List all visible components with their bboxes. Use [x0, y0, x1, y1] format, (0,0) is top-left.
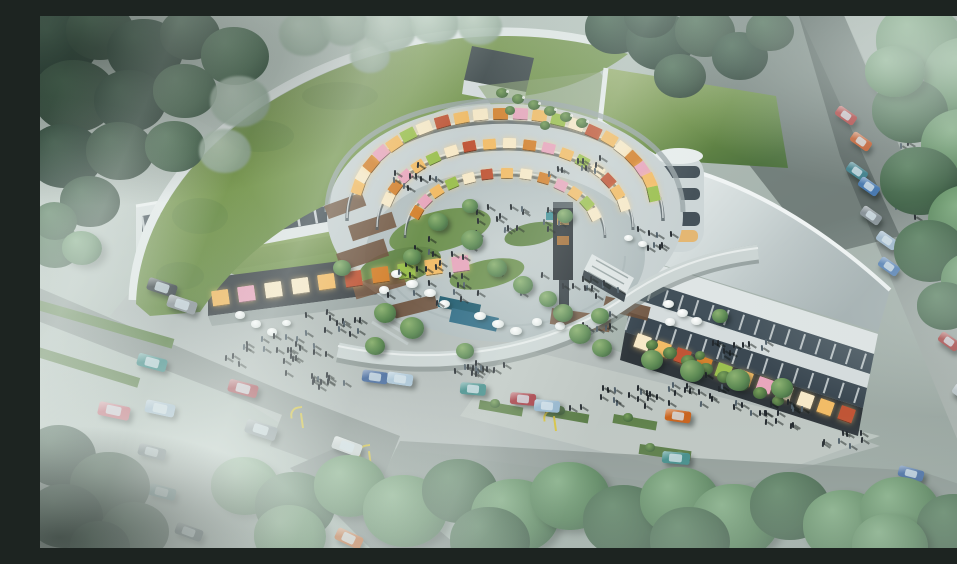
tree: [411, 16, 459, 44]
tree: [199, 129, 251, 173]
tree: [458, 16, 502, 45]
tree: [145, 121, 205, 172]
tree: [917, 282, 957, 330]
tree: [654, 54, 706, 98]
tree: [153, 64, 217, 118]
tree: [62, 231, 102, 265]
tree: [86, 122, 154, 180]
tree: [865, 46, 925, 97]
layer-trees: [40, 16, 957, 548]
tree: [746, 16, 794, 51]
tree: [210, 76, 270, 127]
scene-dynamic: [40, 16, 957, 548]
architectural-rendering: Bird's-eye 3D visualization: a crescent …: [40, 16, 957, 548]
tree: [350, 39, 390, 73]
